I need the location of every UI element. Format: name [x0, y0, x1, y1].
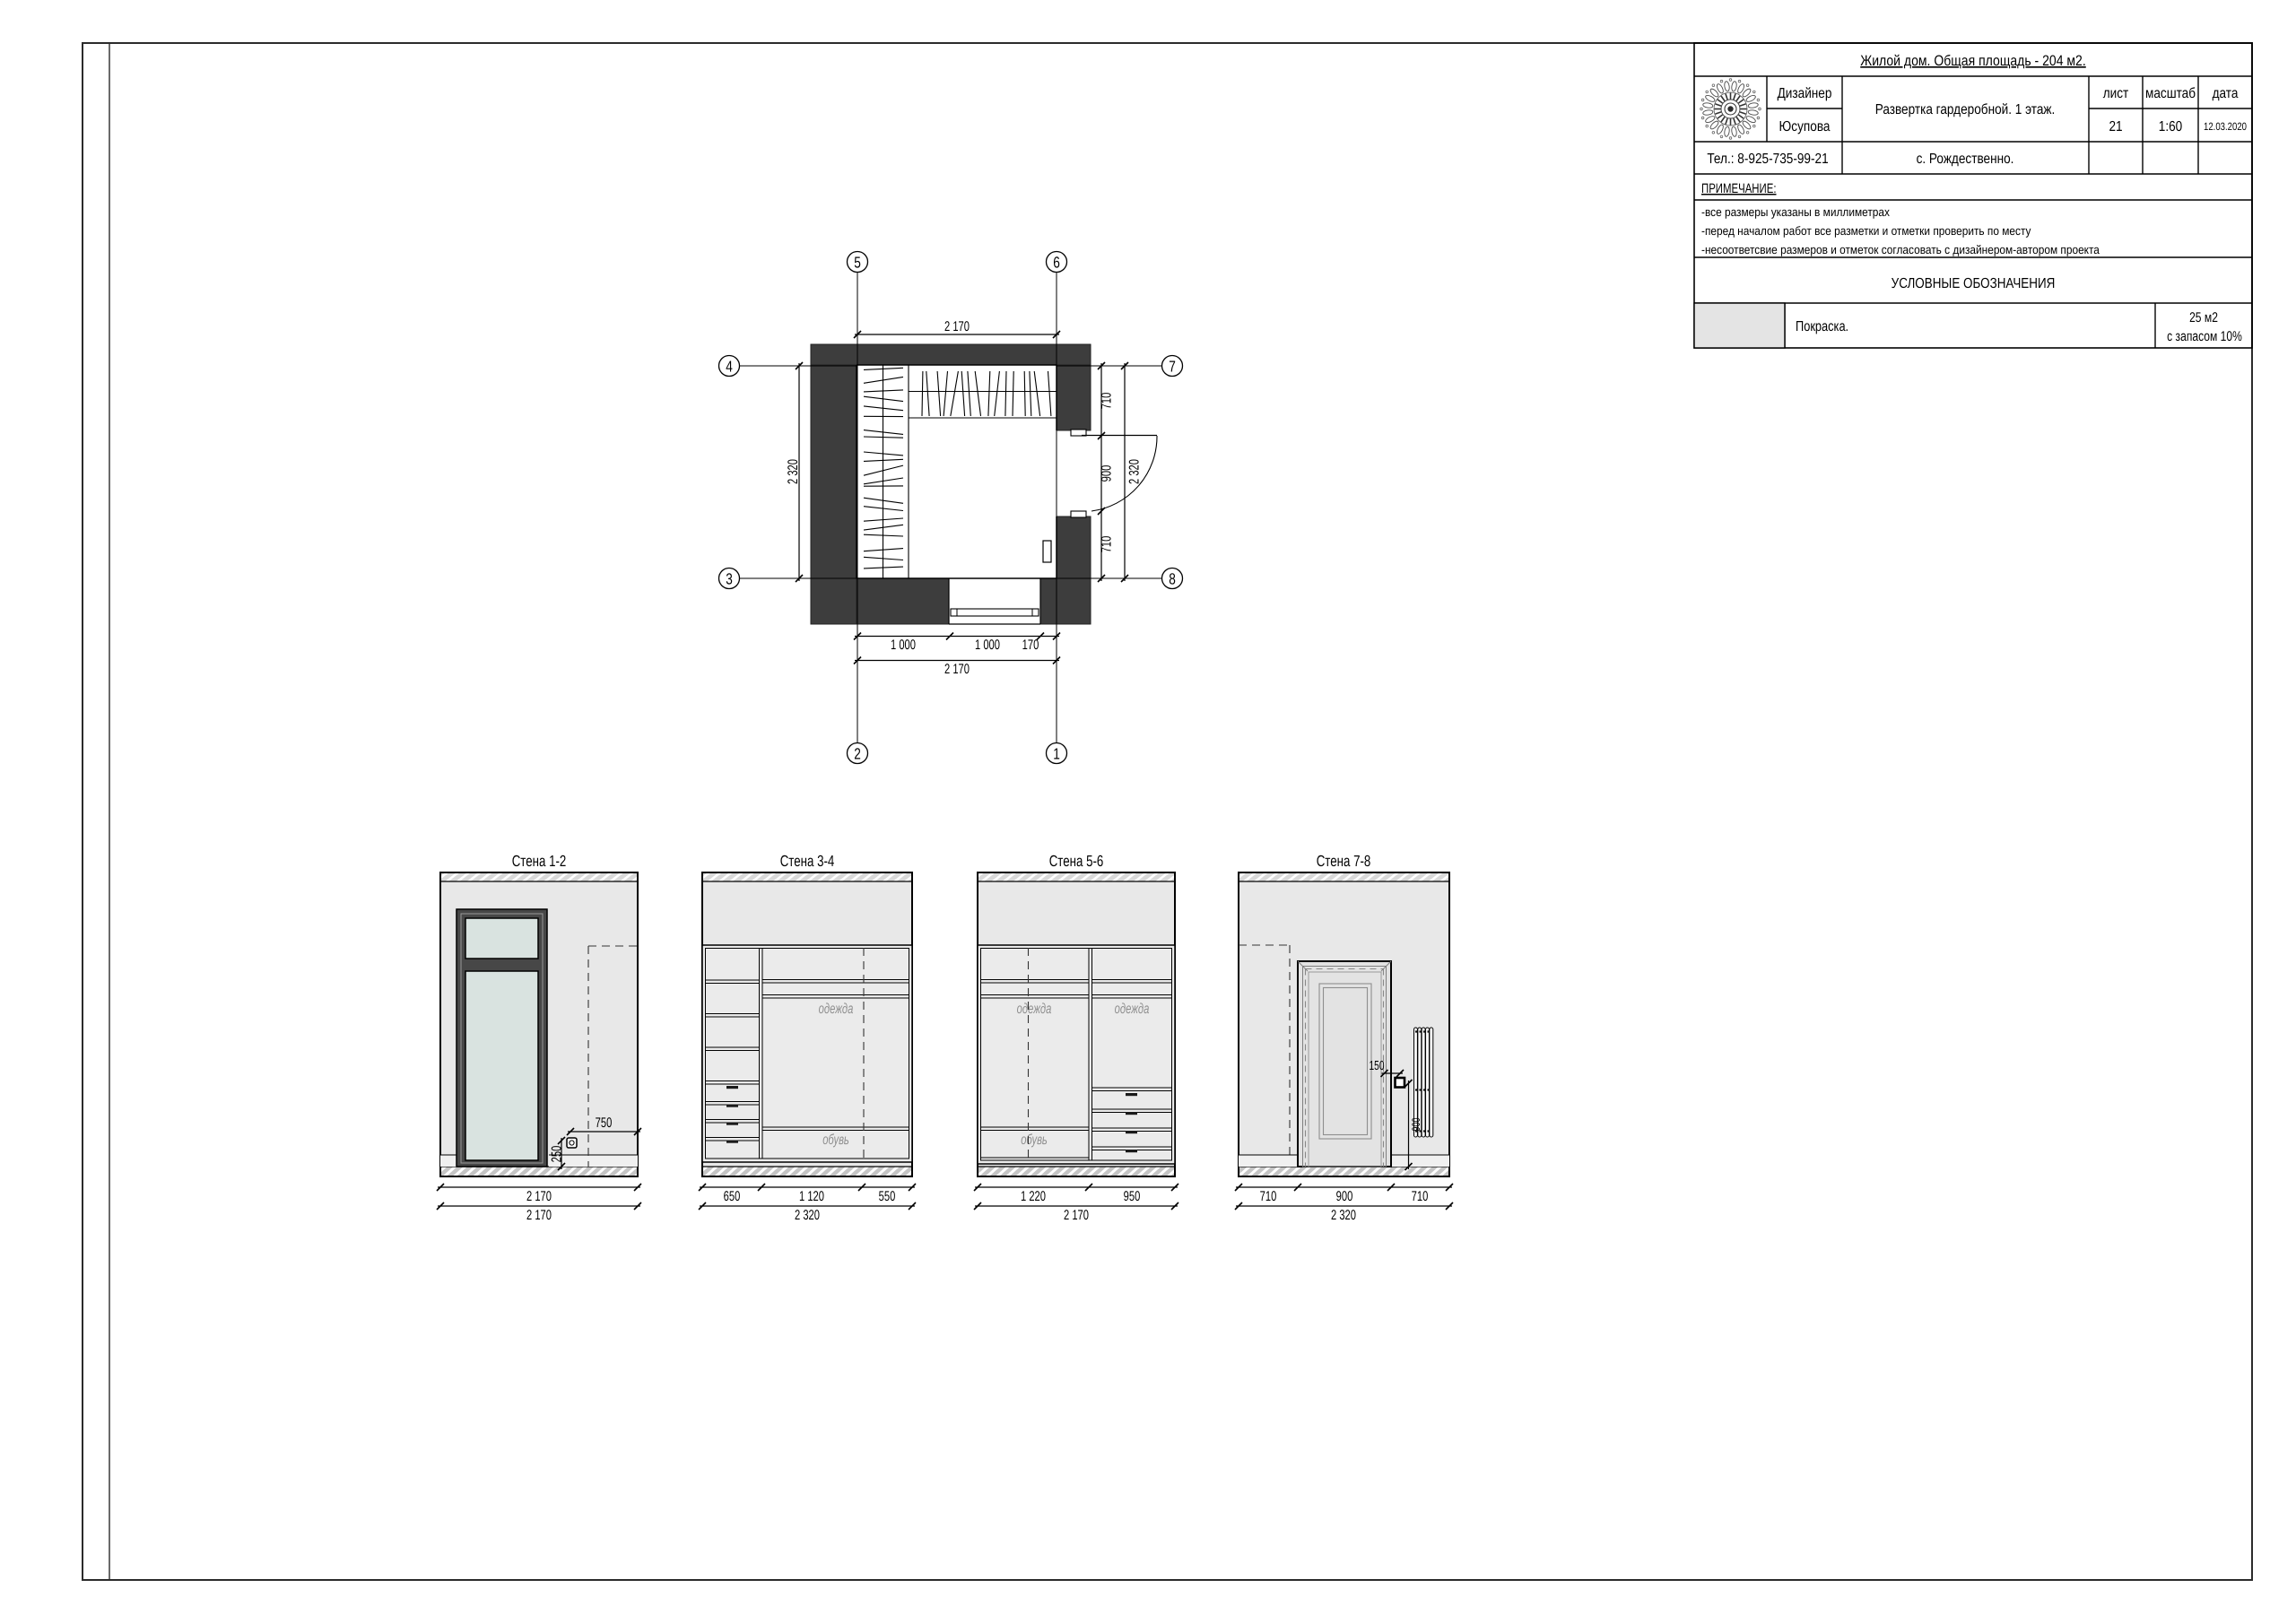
svg-text:25 м2: 25 м2: [2189, 310, 2218, 325]
svg-text:8: 8: [1169, 570, 1176, 588]
svg-text:710: 710: [1260, 1189, 1277, 1204]
svg-text:Тел.: 8-925-735-99-21: Тел.: 8-925-735-99-21: [1707, 152, 1828, 167]
svg-text:5: 5: [854, 254, 861, 272]
svg-text:900: 900: [1410, 1117, 1422, 1131]
svg-text:Стена 1-2: Стена 1-2: [512, 852, 567, 870]
svg-text:Стена 3-4: Стена 3-4: [780, 852, 835, 870]
svg-text:масштаб: масштаб: [2145, 86, 2196, 101]
svg-text:с запасом 10%: с запасом 10%: [2167, 329, 2242, 344]
svg-text:одежда: одежда: [1115, 1002, 1150, 1017]
svg-text:2 320: 2 320: [1331, 1208, 1356, 1223]
svg-text:2 170: 2 170: [1064, 1208, 1089, 1223]
svg-text:обувь: обувь: [822, 1133, 849, 1148]
svg-text:170: 170: [1022, 638, 1039, 653]
svg-text:с. Рождественно.: с. Рождественно.: [1917, 152, 2014, 167]
svg-text:Покраска.: Покраска.: [1796, 319, 1848, 334]
svg-text:2 320: 2 320: [795, 1208, 820, 1223]
svg-text:3: 3: [726, 570, 733, 588]
svg-text:6: 6: [1053, 254, 1060, 272]
svg-text:-перед началом работ все разме: -перед началом работ все разметки и отме…: [1701, 224, 2031, 238]
svg-text:лист: лист: [2103, 86, 2129, 101]
svg-text:2 170: 2 170: [944, 319, 970, 334]
svg-text:одежда: одежда: [1017, 1002, 1052, 1017]
svg-text:2 170: 2 170: [526, 1189, 552, 1204]
svg-text:обувь: обувь: [1021, 1133, 1048, 1148]
svg-text:Дизайнер: Дизайнер: [1778, 86, 1832, 101]
svg-text:4: 4: [726, 358, 733, 376]
svg-text:21: 21: [2109, 119, 2122, 135]
svg-text:250: 250: [550, 1145, 565, 1162]
svg-text:12.03.2020: 12.03.2020: [2204, 120, 2247, 133]
svg-text:2 320: 2 320: [786, 459, 801, 484]
svg-text:150: 150: [1370, 1059, 1385, 1073]
svg-text:2 170: 2 170: [944, 662, 970, 677]
svg-text:7: 7: [1169, 358, 1176, 376]
svg-text:Стена 5-6: Стена 5-6: [1049, 852, 1104, 870]
svg-text:-все размеры указаны в миллиме: -все размеры указаны в миллиметрах: [1701, 205, 1890, 219]
svg-text:750: 750: [596, 1115, 613, 1131]
svg-text:550: 550: [879, 1189, 896, 1204]
svg-text:1 120: 1 120: [799, 1189, 824, 1204]
svg-text:950: 950: [1124, 1189, 1141, 1204]
svg-text:650: 650: [724, 1189, 741, 1204]
svg-text:ПРИМЕЧАНИЕ:: ПРИМЕЧАНИЕ:: [1701, 181, 1776, 196]
svg-text:900: 900: [1100, 464, 1115, 482]
svg-text:1:60: 1:60: [2159, 119, 2183, 135]
svg-text:710: 710: [1412, 1189, 1429, 1204]
svg-text:Развертка гардеробной. 1 этаж.: Развертка гардеробной. 1 этаж.: [1875, 102, 2056, 117]
svg-text:900: 900: [1336, 1189, 1353, 1204]
svg-text:710: 710: [1100, 535, 1115, 552]
svg-text:Жилой дом. Общая площадь - 204: Жилой дом. Общая площадь - 204 м2.: [1860, 53, 2086, 69]
svg-text:-несоответсвие размеров и отме: -несоответсвие размеров и отметок соглас…: [1701, 243, 2100, 256]
svg-text:2 320: 2 320: [1127, 459, 1143, 484]
svg-text:УСЛОВНЫЕ ОБОЗНАЧЕНИЯ: УСЛОВНЫЕ ОБОЗНАЧЕНИЯ: [1892, 276, 2056, 291]
svg-text:Юсупова: Юсупова: [1779, 119, 1831, 135]
svg-text:Стена 7-8: Стена 7-8: [1317, 852, 1371, 870]
svg-text:1: 1: [1053, 745, 1060, 763]
svg-text:дата: дата: [2213, 86, 2239, 101]
svg-text:2: 2: [854, 745, 861, 763]
svg-text:1 220: 1 220: [1021, 1189, 1046, 1204]
svg-text:1 000: 1 000: [891, 638, 916, 653]
svg-text:одежда: одежда: [819, 1002, 854, 1017]
svg-text:1 000: 1 000: [975, 638, 1000, 653]
svg-text:710: 710: [1100, 392, 1115, 409]
svg-text:2 170: 2 170: [526, 1208, 552, 1223]
